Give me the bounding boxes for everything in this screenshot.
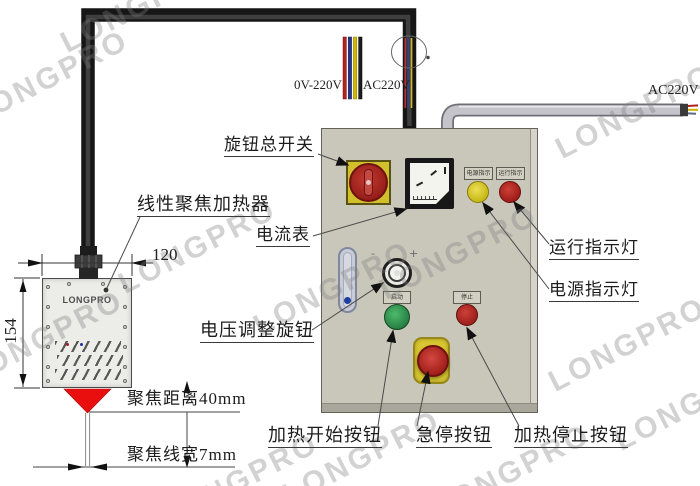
screw-icon bbox=[46, 365, 50, 369]
estop-button[interactable] bbox=[417, 345, 449, 377]
callout-estop: 急停按钮 bbox=[416, 426, 492, 448]
voltage-knob-ring bbox=[388, 264, 406, 282]
ammeter-needle-mark bbox=[416, 181, 423, 186]
ammeter-face bbox=[410, 163, 449, 204]
callout-heat-stop: 加热停止按钮 bbox=[514, 426, 628, 448]
led-speck bbox=[80, 343, 83, 346]
heat-stop-button[interactable] bbox=[456, 304, 478, 326]
wire-label-ac220v-right: AC220V bbox=[648, 83, 699, 99]
led-speck bbox=[66, 343, 69, 346]
callout-rotary-main-switch: 旋钮总开关 bbox=[224, 136, 314, 157]
screw-icon bbox=[46, 305, 50, 309]
focus-distance-label: 聚焦距离40mm bbox=[127, 390, 246, 409]
screw-icon bbox=[123, 365, 127, 369]
fuse-dot bbox=[344, 297, 351, 304]
screw-icon bbox=[123, 345, 127, 349]
wire-label-ac220v: AC220V bbox=[363, 77, 410, 93]
screw-icon bbox=[123, 305, 127, 309]
watermark: LONGPRO bbox=[550, 58, 700, 167]
heat-start-button[interactable] bbox=[384, 304, 410, 330]
rotary-switch-handle-dot bbox=[366, 180, 371, 185]
panel-bottom-edge bbox=[322, 403, 537, 412]
ammeter-scale bbox=[413, 196, 437, 200]
dim-120-text: 120 bbox=[152, 245, 178, 265]
vent-slots bbox=[55, 341, 121, 352]
knob-max-mark: + bbox=[409, 247, 418, 260]
callout-linear-heater: 线性聚焦加热器 bbox=[137, 195, 270, 217]
wire-bundle bbox=[343, 37, 362, 99]
voltage-adjust-knob[interactable] bbox=[382, 258, 412, 288]
voltage-knob-center bbox=[394, 270, 400, 276]
screw-icon bbox=[46, 345, 50, 349]
screw-icon bbox=[46, 379, 50, 383]
start-tag: 启动 bbox=[383, 291, 411, 304]
control-panel: 电源指示 运行指示 - + 启动 停止 bbox=[321, 128, 538, 413]
cable-detail-circle bbox=[392, 36, 430, 68]
callout-run-light: 运行指示灯 bbox=[549, 239, 639, 260]
cable-connector bbox=[75, 246, 102, 279]
diagram-canvas: LONGPRO LONGPRO LONGPRO LONGPRO LONGPRO … bbox=[0, 0, 700, 486]
screw-icon bbox=[101, 282, 105, 286]
ammeter-needle-mark bbox=[430, 170, 436, 176]
screw-icon bbox=[123, 285, 127, 289]
rotary-main-switch-knob[interactable] bbox=[349, 163, 388, 202]
watermark: LONGPRO bbox=[543, 291, 700, 400]
heater-logo: LONGPRO bbox=[43, 295, 131, 305]
grey-power-cable bbox=[448, 104, 699, 128]
heater-body: LONGPRO bbox=[42, 278, 132, 388]
vent-slots bbox=[55, 369, 121, 380]
rotary-switch-handle bbox=[364, 169, 373, 196]
estop-plate bbox=[413, 337, 450, 384]
watermark: LONGPRO bbox=[55, 0, 224, 60]
callout-power-light: 电源指示灯 bbox=[549, 281, 639, 302]
fuse-holder bbox=[338, 247, 357, 313]
wire-label-0v220v: 0V-220V bbox=[294, 77, 342, 93]
vent-slots bbox=[57, 355, 123, 366]
screw-icon bbox=[67, 282, 71, 286]
screw-icon bbox=[46, 285, 50, 289]
screw-icon bbox=[123, 325, 127, 329]
callout-heat-start: 加热开始按钮 bbox=[268, 426, 382, 448]
panel-side-face bbox=[530, 129, 537, 412]
callout-voltage-knob: 电压调整旋钮 bbox=[200, 321, 314, 343]
screw-icon bbox=[46, 325, 50, 329]
dim-width-120 bbox=[18, 254, 153, 276]
power-indicator-light bbox=[467, 181, 489, 203]
cable-strands bbox=[405, 38, 411, 108]
dim-154-text: 154 bbox=[1, 311, 21, 351]
callout-ammeter: 电流表 bbox=[256, 226, 310, 247]
knob-min-mark: - bbox=[371, 247, 375, 260]
ammeter bbox=[405, 158, 454, 209]
focus-width-label: 聚焦线宽7mm bbox=[127, 446, 237, 465]
stop-tag: 停止 bbox=[453, 291, 481, 304]
screw-icon bbox=[123, 379, 127, 383]
focus-cone bbox=[64, 389, 111, 466]
watermark: LONGPRO bbox=[0, 24, 135, 133]
ammeter-tick bbox=[444, 167, 446, 174]
rotary-switch-plate bbox=[346, 160, 391, 205]
ammeter-corner-fold bbox=[436, 191, 449, 204]
run-indicator-light bbox=[499, 181, 521, 203]
run-light-tag: 运行指示 bbox=[496, 167, 525, 180]
power-light-tag: 电源指示 bbox=[464, 167, 493, 180]
